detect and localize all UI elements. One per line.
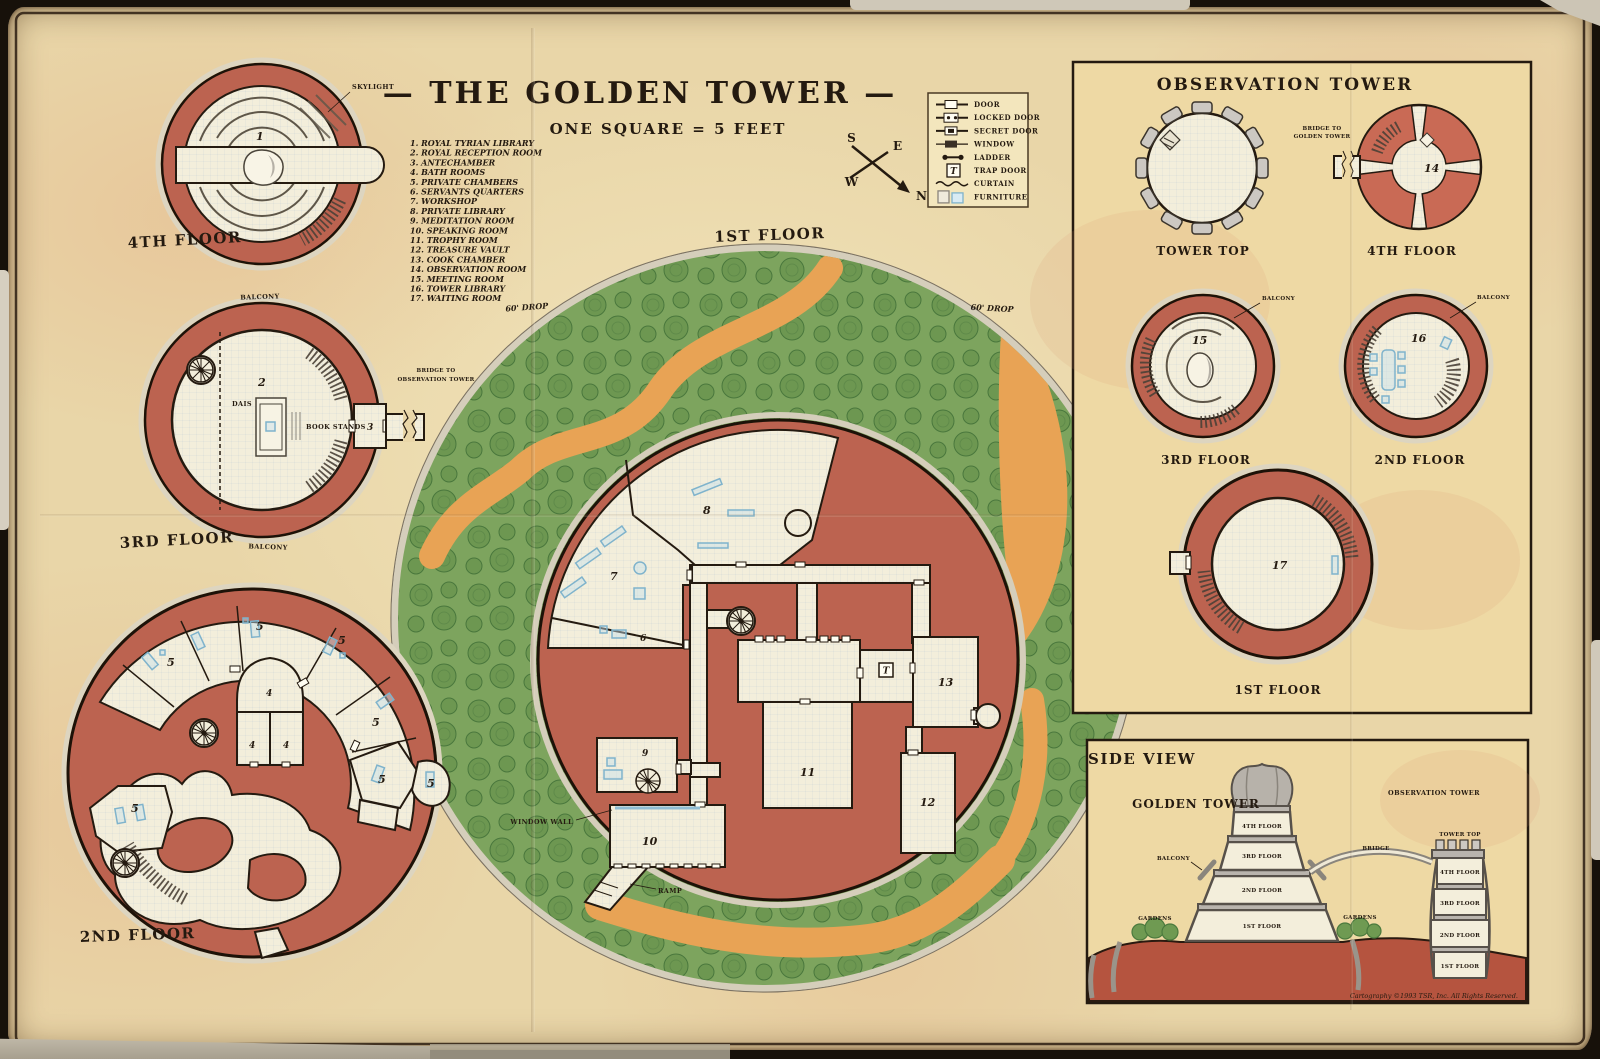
- room-number: 5: [378, 773, 386, 786]
- bridge-label: BRIDGE: [1362, 846, 1389, 852]
- obs-floor4-label: 4TH FLOOR: [1367, 244, 1457, 258]
- key-item: 1. ROYAL TYRIAN LIBRARY: [410, 138, 535, 148]
- spiral-stair-icon: [729, 609, 753, 633]
- room-number: 11: [800, 766, 815, 779]
- gt-floor2-label: 2ND FLOOR: [1242, 888, 1282, 894]
- room-number: 13: [938, 676, 954, 689]
- balcony-label: BALCONY: [240, 292, 280, 301]
- room-key-list: 1. ROYAL TYRIAN LIBRARY 2. ROYAL RECEPTI…: [409, 138, 543, 303]
- room-number: 7: [610, 570, 618, 583]
- golden-tower-map: T: [0, 0, 1600, 1059]
- map-title: — THE GOLDEN TOWER —: [383, 76, 897, 111]
- ot-floor1-label: 1ST FLOOR: [1441, 964, 1480, 970]
- balcony-label: BALCONY: [1157, 856, 1190, 862]
- title-block: — THE GOLDEN TOWER — ONE SQUARE = 5 FEET: [383, 76, 897, 138]
- key-item: 10. SPEAKING ROOM: [410, 225, 509, 235]
- legend-label: DOOR: [974, 100, 1000, 109]
- key-item: 8. PRIVATE LIBRARY: [410, 206, 506, 216]
- key-item: 14. OBSERVATION ROOM: [410, 264, 527, 274]
- gt-floor1-label: 1ST FLOOR: [1243, 924, 1282, 930]
- compass-rose: S E W N: [844, 131, 928, 203]
- balcony-label: BALCONY: [248, 542, 288, 551]
- room-number: 9: [642, 749, 649, 759]
- room-number: 4: [283, 741, 289, 751]
- gt-floor3-label: 3RD FLOOR: [1242, 854, 1282, 860]
- balcony-label: BALCONY: [1262, 296, 1295, 302]
- legend-label: LOCKED DOOR: [974, 113, 1040, 122]
- compass-south: S: [847, 131, 857, 145]
- map-sheet: T: [0, 0, 1600, 1059]
- golden-tower-4th-floor-plan: 1 SKYLIGHT 4TH FLOOR: [127, 60, 394, 268]
- gt-floor4-label: 4TH FLOOR: [1242, 824, 1282, 830]
- bridge-note-line1: BRIDGE TO: [1303, 126, 1342, 132]
- room-number: 1: [256, 130, 264, 143]
- room-number: 14: [1424, 162, 1439, 175]
- golden-tower-label: GOLDEN TOWER: [1132, 797, 1260, 811]
- compass-east: E: [893, 139, 903, 153]
- dais-label: DAIS: [232, 400, 252, 408]
- observation-tower-cross-section: TOWER TOP 4TH FLOOR 3RD FLOOR 2ND FLOOR …: [1430, 832, 1489, 978]
- floor3-label: 3RD FLOOR: [119, 528, 234, 552]
- side-view-title: SIDE VIEW: [1088, 750, 1196, 768]
- room-number: 2: [257, 376, 266, 389]
- book-stands-label: BOOK STANDS: [306, 423, 366, 431]
- ot-floor2-label: 2ND FLOOR: [1440, 933, 1480, 939]
- ot-top-label: TOWER TOP: [1439, 832, 1480, 838]
- bridge-note-line2: OBSERVATION TOWER: [397, 377, 474, 383]
- legend-label: WINDOW: [973, 140, 1015, 149]
- compass-north: N: [916, 189, 928, 203]
- tower-top-label: TOWER TOP: [1156, 244, 1250, 258]
- room-number: 5: [131, 802, 139, 815]
- first-floor-label: 1ST FLOOR: [714, 224, 826, 246]
- trap-door-symbol: T: [947, 164, 960, 177]
- legend-label: CURTAIN: [974, 179, 1015, 188]
- spiral-stair-icon: [189, 358, 213, 382]
- room-number: 6: [640, 634, 647, 644]
- ramp-label: RAMP: [658, 887, 682, 895]
- room-number: 5: [256, 620, 264, 633]
- key-item: 11. TROPHY ROOM: [410, 235, 499, 245]
- legend-label: FURNITURE: [974, 192, 1028, 201]
- room-number: 15: [1192, 334, 1207, 347]
- key-item: 17. WAITING ROOM: [410, 293, 502, 303]
- key-item: 12. TREASURE VAULT: [410, 245, 511, 255]
- drop-label-left: 60' DROP: [505, 300, 550, 313]
- room-number: 5: [372, 716, 380, 729]
- fold-crease: [40, 514, 1070, 517]
- legend-box: T DOOR LOCKED DOOR SECRET DOOR WINDOW LA…: [928, 93, 1040, 207]
- spiral-stair-icon: [636, 769, 660, 793]
- spiral-stair-icon: [113, 851, 137, 875]
- legend-label: TRAP DOOR: [974, 166, 1027, 175]
- alcove: [785, 510, 811, 536]
- fold-crease: [1350, 64, 1353, 1010]
- obs-floor3-label: 3RD FLOOR: [1161, 453, 1251, 467]
- key-item: 2. ROYAL RECEPTION ROOM: [409, 148, 543, 158]
- room-number: 12: [920, 796, 936, 809]
- obs-floor2-label: 2ND FLOOR: [1375, 453, 1466, 467]
- bridge-note-line1: BRIDGE TO: [417, 368, 456, 374]
- room-10: [610, 805, 725, 867]
- key-item: 4. BATH ROOMS: [410, 167, 485, 177]
- room-number: 4: [266, 689, 272, 699]
- gardens-label-right: GARDENS: [1343, 915, 1377, 921]
- north-arrow: [897, 180, 910, 193]
- ot-floor4-label: 4TH FLOOR: [1440, 870, 1480, 876]
- room-11: [763, 702, 852, 808]
- ot-floor3-label: 3RD FLOOR: [1440, 901, 1480, 907]
- fold-crease: [531, 28, 535, 1032]
- balcony-label: BALCONY: [1477, 295, 1510, 301]
- key-item: 6. SERVANTS QUARTERS: [410, 187, 524, 197]
- room-number: 4: [249, 741, 255, 751]
- key-item: 5. PRIVATE CHAMBERS: [410, 177, 518, 187]
- room-number: 16: [1411, 332, 1427, 345]
- room-number: 5: [167, 656, 175, 669]
- room-number: 3: [367, 423, 373, 433]
- observation-tower-label: OBSERVATION TOWER: [1388, 789, 1480, 797]
- window-wall-label: WINDOW WALL: [509, 818, 573, 826]
- observation-tower-panel: OBSERVATION TOWER: [1030, 62, 1531, 713]
- key-item: 15. MEETING ROOM: [410, 274, 505, 284]
- room-number: 10: [642, 835, 658, 848]
- copyright: Cartography ©1993 TSR, Inc. All Rights R…: [1350, 992, 1518, 1000]
- key-item: 13. COOK CHAMBER: [410, 254, 506, 264]
- key-item: 16. TOWER LIBRARY: [410, 284, 507, 294]
- panel-title: OBSERVATION TOWER: [1157, 75, 1414, 95]
- room-number: 5: [338, 634, 346, 647]
- key-item: 3. ANTECHAMBER: [410, 157, 496, 167]
- spiral-stair-icon: [192, 721, 216, 745]
- alcove: [976, 704, 1000, 728]
- legend-label: LADDER: [974, 153, 1011, 162]
- gardens-label-left: GARDENS: [1138, 916, 1172, 922]
- room-number: 17: [1272, 559, 1288, 572]
- obs-floor1-label: 1ST FLOOR: [1235, 683, 1322, 697]
- key-item: 9. MEDITATION ROOM: [410, 216, 515, 226]
- legend-label: SECRET DOOR: [974, 126, 1038, 135]
- key-item: 7. WORKSHOP: [410, 196, 478, 206]
- room-number: 5: [427, 777, 435, 790]
- bridge-note-line2: GOLDEN TOWER: [1294, 134, 1351, 140]
- scale-note: ONE SQUARE = 5 FEET: [550, 120, 787, 138]
- compass-west: W: [844, 175, 859, 189]
- side-view-panel: SIDE VIEW 4TH FLOOR 3RD FLOOR 2ND FLOOR: [1087, 740, 1540, 1003]
